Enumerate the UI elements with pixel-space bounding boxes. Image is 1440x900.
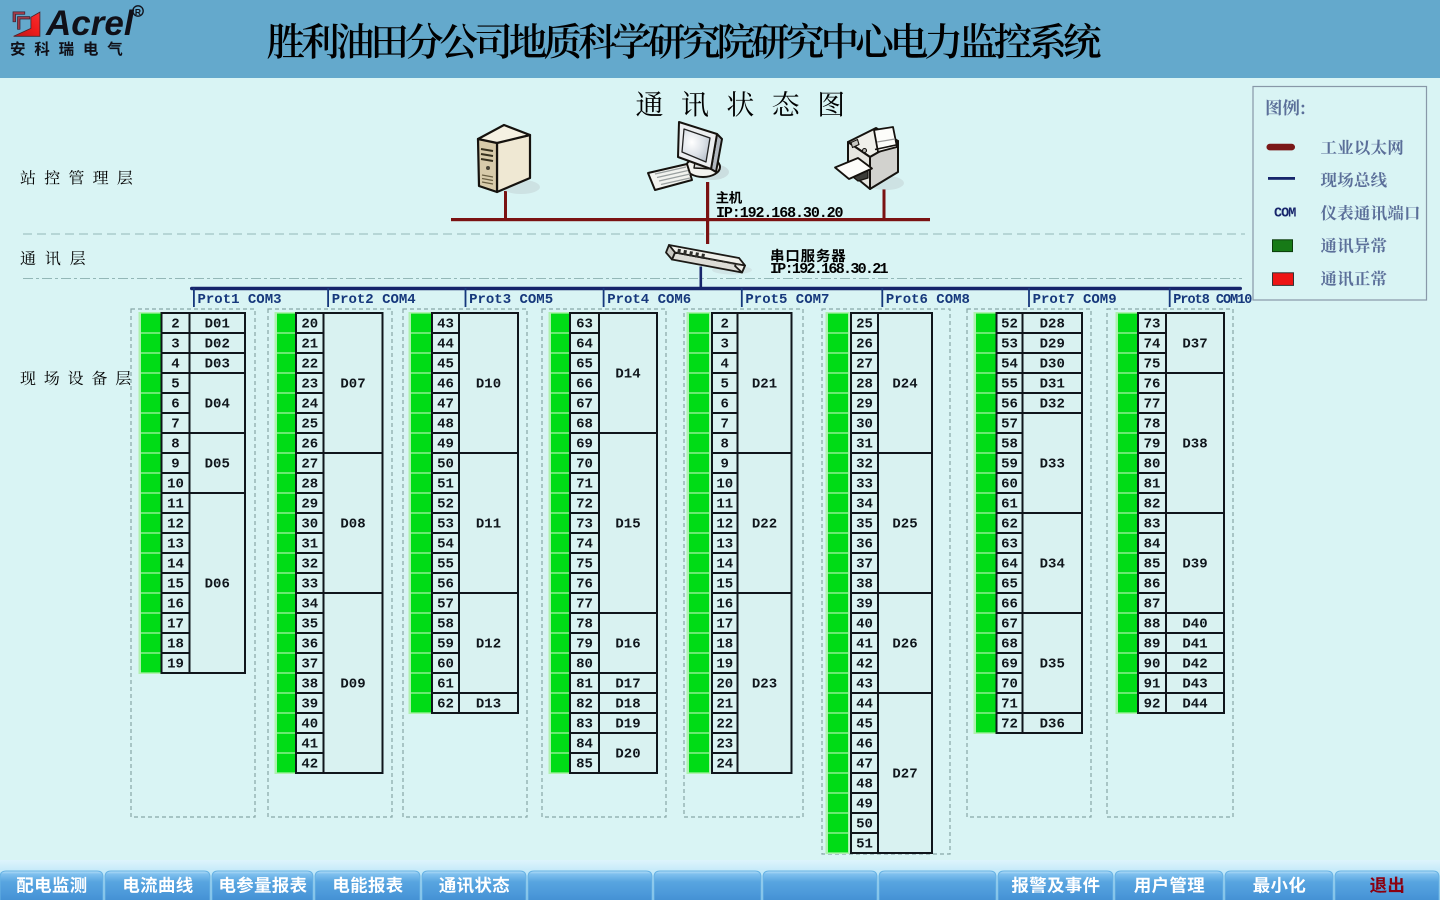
svg-text:70: 70 [1001,677,1018,693]
svg-text:30: 30 [301,517,318,533]
svg-text:87: 87 [1144,597,1161,613]
svg-text:55: 55 [1001,377,1018,393]
svg-text:32: 32 [301,557,318,573]
svg-text:85: 85 [576,757,593,773]
svg-text:88: 88 [1144,617,1161,633]
svg-text:D43: D43 [1182,677,1207,693]
svg-text:29: 29 [301,497,318,513]
svg-text:52: 52 [437,497,454,513]
svg-text:49: 49 [437,437,454,453]
svg-text:31: 31 [856,437,873,453]
svg-text:16: 16 [167,597,184,613]
svg-text:Prot7 COM9: Prot7 COM9 [1033,292,1117,308]
svg-text:63: 63 [1001,537,1018,553]
svg-text:10: 10 [716,477,733,493]
svg-text:29: 29 [856,397,873,413]
svg-text:66: 66 [1001,597,1018,613]
svg-text:77: 77 [1144,397,1161,413]
svg-text:D28: D28 [1040,317,1065,333]
svg-text:24: 24 [301,397,318,413]
svg-text:67: 67 [1001,617,1018,633]
svg-text:13: 13 [716,537,733,553]
svg-text:44: 44 [437,337,454,353]
svg-text:D16: D16 [615,637,640,653]
svg-text:D10: D10 [476,377,501,393]
svg-text:D18: D18 [615,697,640,713]
svg-text:D32: D32 [1040,397,1065,413]
svg-text:10: 10 [167,477,184,493]
svg-text:21: 21 [716,697,733,713]
svg-text:19: 19 [716,657,733,673]
svg-text:35: 35 [856,517,873,533]
svg-text:62: 62 [437,697,454,713]
svg-text:2: 2 [721,317,729,333]
svg-text:45: 45 [437,357,454,373]
svg-text:65: 65 [576,357,593,373]
svg-text:19: 19 [167,657,184,673]
svg-text:Prot3 COM5: Prot3 COM5 [469,292,553,308]
svg-text:68: 68 [576,417,593,433]
svg-text:14: 14 [716,557,733,573]
svg-text:61: 61 [1001,497,1018,513]
svg-text:7: 7 [171,417,179,433]
svg-text:76: 76 [576,577,593,593]
svg-text:83: 83 [1144,517,1161,533]
svg-text:D27: D27 [892,767,917,783]
svg-text:33: 33 [301,577,318,593]
svg-text:50: 50 [437,457,454,473]
svg-text:80: 80 [1144,457,1161,473]
svg-text:46: 46 [437,377,454,393]
svg-text:D30: D30 [1040,357,1065,373]
svg-text:D14: D14 [615,367,640,383]
svg-text:84: 84 [1144,537,1161,553]
svg-text:37: 37 [301,657,318,673]
svg-text:25: 25 [856,317,873,333]
svg-text:71: 71 [576,477,593,493]
svg-text:67: 67 [576,397,593,413]
svg-text:43: 43 [437,317,454,333]
svg-text:43: 43 [856,677,873,693]
svg-text:D04: D04 [205,397,230,413]
svg-text:79: 79 [576,637,593,653]
svg-text:78: 78 [576,617,593,633]
svg-text:81: 81 [576,677,593,693]
svg-text:74: 74 [576,537,593,553]
svg-text:Prot5 COM7: Prot5 COM7 [745,292,829,308]
svg-text:D31: D31 [1040,377,1065,393]
svg-text:24: 24 [716,757,733,773]
svg-text:COM: COM [1274,207,1296,222]
svg-text:79: 79 [1144,437,1161,453]
svg-text:21: 21 [301,337,318,353]
svg-text:47: 47 [856,757,873,773]
svg-text:74: 74 [1144,337,1161,353]
svg-text:5: 5 [721,377,729,393]
svg-text:41: 41 [856,637,873,653]
svg-text:60: 60 [1001,477,1018,493]
svg-text:82: 82 [576,697,593,713]
svg-text:D36: D36 [1040,717,1065,733]
svg-text:D08: D08 [340,517,365,533]
svg-text:31: 31 [301,537,318,553]
svg-text:D09: D09 [340,677,365,693]
svg-text:18: 18 [716,637,733,653]
svg-text:D05: D05 [205,457,230,473]
svg-text:23: 23 [716,737,733,753]
svg-text:66: 66 [576,377,593,393]
svg-text:D03: D03 [205,357,230,373]
svg-text:D26: D26 [892,637,917,653]
svg-text:3: 3 [721,337,729,353]
svg-text:9: 9 [721,457,729,473]
svg-text:13: 13 [167,537,184,553]
svg-text:34: 34 [856,497,873,513]
svg-text:69: 69 [1001,657,1018,673]
svg-text:D22: D22 [752,517,777,533]
svg-text:83: 83 [576,717,593,733]
svg-text:72: 72 [1001,717,1018,733]
svg-text:63: 63 [576,317,593,333]
svg-text:76: 76 [1144,377,1161,393]
svg-text:D35: D35 [1040,657,1065,673]
svg-text:D33: D33 [1040,457,1065,473]
svg-text:32: 32 [856,457,873,473]
svg-text:11: 11 [167,497,184,513]
svg-text:D15: D15 [615,517,640,533]
svg-text:28: 28 [301,477,318,493]
svg-text:D40: D40 [1182,617,1207,633]
svg-text:D41: D41 [1182,637,1207,653]
svg-text:D11: D11 [476,517,501,533]
svg-text:D25: D25 [892,517,917,533]
svg-text:D29: D29 [1040,337,1065,353]
svg-text:89: 89 [1144,637,1161,653]
svg-text:56: 56 [1001,397,1018,413]
svg-text:30: 30 [856,417,873,433]
svg-text:58: 58 [1001,437,1018,453]
svg-text:IP:192.168.30.21: IP:192.168.30.21 [770,261,889,278]
svg-text:57: 57 [437,597,454,613]
svg-text:Acrel: Acrel [45,4,135,43]
svg-text:18: 18 [167,637,184,653]
svg-text:84: 84 [576,737,593,753]
svg-text:26: 26 [856,337,873,353]
svg-text:9: 9 [171,457,179,473]
svg-text:59: 59 [437,637,454,653]
svg-text:D07: D07 [340,377,365,393]
svg-text:75: 75 [576,557,593,573]
svg-text:91: 91 [1144,677,1161,693]
svg-text:58: 58 [437,617,454,633]
svg-text:D39: D39 [1182,557,1207,573]
svg-text:90: 90 [1144,657,1161,673]
svg-text:59: 59 [1001,457,1018,473]
svg-text:64: 64 [1001,557,1018,573]
svg-text:62: 62 [1001,517,1018,533]
svg-text:D21: D21 [752,377,777,393]
svg-text:47: 47 [437,397,454,413]
svg-text:38: 38 [301,677,318,693]
svg-text:73: 73 [1144,317,1161,333]
svg-text:28: 28 [856,377,873,393]
svg-text:27: 27 [301,457,318,473]
svg-text:48: 48 [856,777,873,793]
svg-text:64: 64 [576,337,593,353]
svg-text:40: 40 [856,617,873,633]
svg-text:50: 50 [856,817,873,833]
svg-text:39: 39 [301,697,318,713]
svg-text:65: 65 [1001,577,1018,593]
svg-text:36: 36 [856,537,873,553]
svg-text:Prot4 COM6: Prot4 COM6 [607,292,691,308]
svg-text:33: 33 [856,477,873,493]
svg-text:11: 11 [716,497,733,513]
svg-text:8: 8 [171,437,179,453]
svg-text:51: 51 [856,837,873,853]
svg-text:52: 52 [1001,317,1018,333]
svg-text:IP:192.168.30.20: IP:192.168.30.20 [716,205,844,222]
svg-text:D44: D44 [1182,697,1207,713]
svg-text:5: 5 [171,377,179,393]
svg-text:D19: D19 [615,717,640,733]
svg-text:44: 44 [856,697,873,713]
svg-text:Prot1 COM3: Prot1 COM3 [198,292,282,308]
svg-text:49: 49 [856,797,873,813]
svg-text:6: 6 [171,397,179,413]
svg-text:46: 46 [856,737,873,753]
svg-text:2: 2 [171,317,179,333]
svg-text:D12: D12 [476,637,501,653]
svg-text:Prot2 COM4: Prot2 COM4 [332,292,416,308]
svg-text:81: 81 [1144,477,1161,493]
svg-text:22: 22 [716,717,733,733]
svg-text:12: 12 [716,517,733,533]
svg-text:45: 45 [856,717,873,733]
svg-text:25: 25 [301,417,318,433]
svg-text:56: 56 [437,577,454,593]
svg-text:20: 20 [301,317,318,333]
svg-text:23: 23 [301,377,318,393]
svg-text:75: 75 [1144,357,1161,373]
svg-text:42: 42 [856,657,873,673]
svg-text:51: 51 [437,477,454,493]
svg-text:34: 34 [301,597,318,613]
svg-text:4: 4 [721,357,729,373]
svg-text:48: 48 [437,417,454,433]
svg-text:36: 36 [301,637,318,653]
svg-text:D20: D20 [615,747,640,763]
svg-text:41: 41 [301,737,318,753]
svg-text:71: 71 [1001,697,1018,713]
svg-text:53: 53 [437,517,454,533]
svg-text:D42: D42 [1182,657,1207,673]
svg-text:D02: D02 [205,337,230,353]
svg-text:15: 15 [716,577,733,593]
svg-text:D38: D38 [1182,437,1207,453]
svg-text:14: 14 [167,557,184,573]
svg-text:16: 16 [716,597,733,613]
svg-text:40: 40 [301,717,318,733]
svg-text:82: 82 [1144,497,1161,513]
svg-text:39: 39 [856,597,873,613]
svg-text:22: 22 [301,357,318,373]
svg-text:D34: D34 [1040,557,1065,573]
svg-text:Prot6 COM8: Prot6 COM8 [886,292,970,308]
svg-text:15: 15 [167,577,184,593]
svg-text:42: 42 [301,757,318,773]
svg-text:37: 37 [856,557,873,573]
svg-text:17: 17 [716,617,733,633]
svg-text:D06: D06 [205,577,230,593]
svg-text:26: 26 [301,437,318,453]
svg-text:27: 27 [856,357,873,373]
svg-text:68: 68 [1001,637,1018,653]
svg-text:7: 7 [721,417,729,433]
svg-text:55: 55 [437,557,454,573]
svg-text:38: 38 [856,577,873,593]
svg-text:69: 69 [576,437,593,453]
svg-text:77: 77 [576,597,593,613]
svg-text:85: 85 [1144,557,1161,573]
svg-text:D23: D23 [752,677,777,693]
svg-text:53: 53 [1001,337,1018,353]
svg-text:57: 57 [1001,417,1018,433]
svg-text:54: 54 [437,537,454,553]
svg-text:D01: D01 [205,317,230,333]
svg-text:54: 54 [1001,357,1018,373]
svg-text:17: 17 [167,617,184,633]
svg-text:12: 12 [167,517,184,533]
svg-text:86: 86 [1144,577,1161,593]
svg-text:D13: D13 [476,697,501,713]
svg-text:D17: D17 [615,677,640,693]
svg-text:20: 20 [716,677,733,693]
svg-text:6: 6 [721,397,729,413]
svg-text:Prot8 COM10: Prot8 COM10 [1173,293,1252,308]
svg-text:78: 78 [1144,417,1161,433]
svg-text:60: 60 [437,657,454,673]
svg-text:D24: D24 [892,377,917,393]
svg-text:70: 70 [576,457,593,473]
svg-text:80: 80 [576,657,593,673]
svg-text:73: 73 [576,517,593,533]
svg-text:4: 4 [171,357,179,373]
svg-text:92: 92 [1144,697,1161,713]
svg-text:D37: D37 [1182,337,1207,353]
svg-text:35: 35 [301,617,318,633]
svg-text:8: 8 [721,437,729,453]
svg-text:3: 3 [171,337,179,353]
svg-text:R: R [135,7,141,17]
svg-text:61: 61 [437,677,454,693]
svg-text:72: 72 [576,497,593,513]
